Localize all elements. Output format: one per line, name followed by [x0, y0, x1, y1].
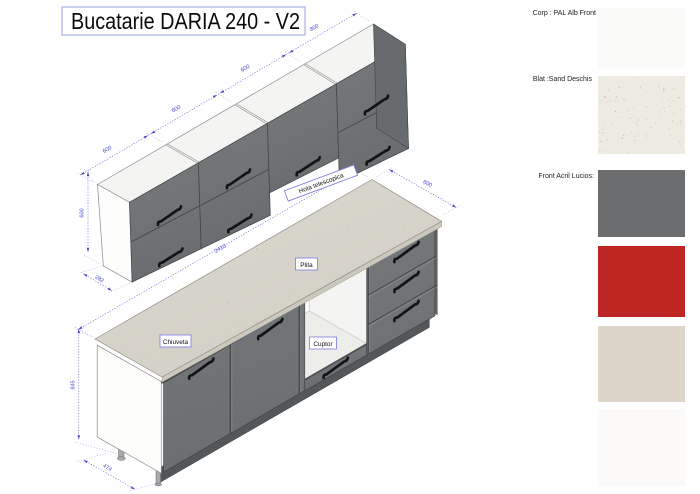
svg-text:845: 845: [71, 380, 77, 389]
svg-text:Blat :Sand Deschis: Blat :Sand Deschis: [533, 76, 593, 83]
svg-text:Bucatarie DARIA 240 - V2: Bucatarie DARIA 240 - V2: [71, 8, 300, 34]
svg-text:Chiuveta: Chiuveta: [163, 339, 189, 346]
svg-text:600: 600: [80, 208, 86, 217]
svg-text:Plita: Plita: [300, 262, 313, 269]
svg-text:Front Acril Lucios:: Front Acril Lucios:: [538, 173, 594, 180]
svg-text:Corp : PAL Alb Front: Corp : PAL Alb Front: [533, 10, 596, 17]
svg-text:Cuptor: Cuptor: [313, 341, 333, 348]
